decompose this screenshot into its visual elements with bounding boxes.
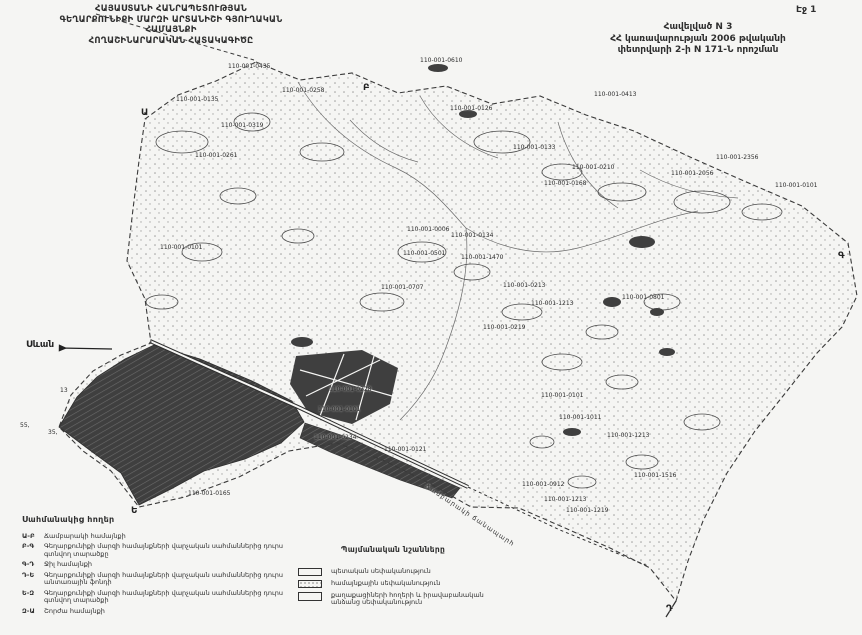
legend-swatch-plain2	[298, 592, 322, 601]
legend-item-code: Ա-Բ	[22, 533, 44, 541]
parcel-code-label: 110-001-0219	[483, 325, 526, 331]
legend-conventional-signs: Պայմանական նշանները պետական սեփականությո…	[298, 546, 488, 611]
legend-item-label: Գեղարքունիքի մարզի համայնքների վարչական …	[44, 543, 290, 558]
legend-item-label: Գեղարքունիքի մարզի համայնքների վարչական …	[44, 572, 290, 587]
parcel-code-label: 110-001-0213	[503, 283, 546, 289]
legend-item-code: Ե-Զ	[22, 590, 44, 605]
parcel-code-label: 110-001-0101	[775, 183, 818, 189]
parcel-code-label: 110-001-0135	[176, 97, 219, 103]
parcel-code-label: 110-001-0413	[594, 92, 637, 98]
parcel-code-label: 110-001-1011	[559, 415, 602, 421]
boundary-letter: Դ	[666, 605, 673, 614]
parcel-code-label: 110-001-0101	[318, 407, 361, 413]
scanned-map-page: ՀԱՅԱՍՏԱՆԻ ՀԱՆՐԱՊԵՏՈՒԹՅԱՆ ԳԵՂԱՐՔՈՒՆԻՔԻ ՄԱ…	[0, 0, 862, 635]
parcel-code-label: 13	[60, 388, 68, 394]
parcel-code-label: 110-001-0234	[314, 435, 357, 441]
legend-adjacent-item: Բ-ԳԳեղարքունիքի մարզի համայնքների վարչակ…	[22, 543, 290, 558]
legend-adjacent-item: Ե-ԶԳեղարքունիքի մարզի համայնքների վարչակ…	[22, 590, 290, 605]
parcel-code-label: 110-001-0121	[384, 447, 427, 453]
legend-item-label: Գեղարքունիքի մարզի համայնքների վարչական …	[44, 590, 290, 605]
legend-sign-item: համայնքային սեփականություն	[298, 580, 488, 588]
parcel-code-label: 110-001-0006	[407, 227, 450, 233]
legend-sign-label: պետական սեփականություն	[331, 568, 488, 576]
legend-swatch-plain	[298, 568, 322, 576]
legend-sign-label: քաղաքացիների հողերի և իրավաբանական անձան…	[331, 592, 488, 607]
legend-item-code: Դ-Ե	[22, 572, 44, 587]
boundary-letter: Ե	[131, 507, 138, 516]
parcel-code-label: 35,	[48, 430, 58, 436]
legend-adjacent-item: Զ-ԱՇորժա համայնքի	[22, 608, 290, 616]
parcel-code-label: 110-001-1516	[634, 473, 677, 479]
parcel-code-label: 110-001-1219	[566, 508, 609, 514]
legend-adjacent-item: Ա-ԲՃամբարակի համայնքի	[22, 533, 290, 541]
parcel-code-label: 110-001-0134	[451, 233, 494, 239]
parcel-code-label: 110-001-0126	[450, 106, 493, 112]
parcel-code-label: 110-001-1470	[461, 255, 504, 261]
parcel-code-label: 110-001-0707	[381, 285, 424, 291]
legend-adjacent-items: Ա-ԲՃամբարակի համայնքիԲ-ԳԳեղարքունիքի մար…	[22, 533, 290, 616]
parcel-code-label: 110-001-0228	[329, 387, 372, 393]
legend-item-label: Ճամբարակի համայնքի	[44, 533, 290, 541]
parcel-code-label: 110-001-0258	[282, 88, 325, 94]
parcel-code-label: 110-001-0101	[160, 245, 203, 251]
parcel-code-label: 110-001-1213	[607, 433, 650, 439]
legend-adjacent-item: Գ-ԴՋիլ համայնքի	[22, 561, 290, 569]
parcel-code-label: 110-001-2056	[671, 171, 714, 177]
legend-item-label: Ջիլ համայնքի	[44, 561, 290, 569]
parcel-code-label: 110-001-0101	[541, 393, 584, 399]
boundary-letter: Գ	[838, 252, 845, 261]
legend-swatch-dots	[298, 580, 322, 588]
legend-sign-item: պետական սեփականություն	[298, 568, 488, 576]
parcel-code-label: 55,	[20, 423, 30, 429]
legend-adjacent-lands: Սահմանակից հողեր Ա-ԲՃամբարակի համայնքիԲ-…	[22, 516, 290, 618]
legend-adjacent-item: Դ-ԵԳեղարքունիքի մարզի համայնքների վարչակ…	[22, 572, 290, 587]
boundary-leader-line	[96, 14, 254, 60]
legend-item-code: Զ-Ա	[22, 608, 44, 616]
sevan-arrow	[60, 348, 112, 349]
parcel-code-label: 110-001-0501	[403, 251, 446, 257]
boundary-letter: Ա	[141, 109, 148, 118]
legend-signs-items: պետական սեփականությունհամայնքային սեփակա…	[298, 568, 488, 607]
parcel-code-label: 110-001-0912	[522, 482, 565, 488]
parcel-code-label: 110-001-2356	[716, 155, 759, 161]
parcel-code-label: 110-001-0610	[420, 58, 463, 64]
parcel-code-label: 110-001-0133	[513, 145, 556, 151]
parcel-code-label: 110-001-1213	[531, 301, 574, 307]
parcel-code-label: 110-001-0435	[228, 64, 271, 70]
parcel-code-label: 110-001-0165	[188, 491, 231, 497]
legend-item-code: Գ-Դ	[22, 561, 44, 569]
legend-signs-title: Պայմանական նշանները	[298, 546, 488, 554]
parcel-code-label: 110-001-0319	[221, 123, 264, 129]
parcel-code-label: 110-001-0261	[195, 153, 238, 159]
parcel-code-label: 110-001-1213	[544, 497, 587, 503]
lake-label: Սևան	[26, 340, 54, 350]
legend-sign-label: համայնքային սեփականություն	[331, 580, 488, 588]
legend-sign-item: քաղաքացիների հողերի և իրավաբանական անձան…	[298, 592, 488, 607]
legend-item-label: Շորժա համայնքի	[44, 608, 290, 616]
parcel-code-label: 110-001-0210	[572, 165, 615, 171]
parcel-code-label: 110-001-0801	[622, 295, 665, 301]
legend-item-code: Բ-Գ	[22, 543, 44, 558]
parcel-code-label: 110-001-0168	[544, 181, 587, 187]
boundary-letter: Բ	[363, 84, 370, 93]
legend-adjacent-title: Սահմանակից հողեր	[22, 516, 290, 524]
